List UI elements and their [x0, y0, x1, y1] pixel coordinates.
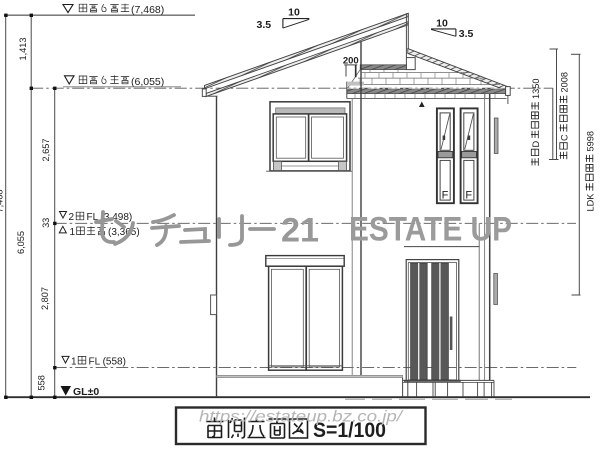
svg-text:2008: 2008	[560, 72, 570, 92]
svg-text:F: F	[465, 190, 472, 202]
svg-text:7,468: 7,468	[0, 190, 5, 213]
svg-text:ESTATE UP: ESTATE UP	[349, 211, 512, 249]
svg-text:F: F	[442, 190, 449, 202]
svg-text:1: 1	[70, 227, 76, 238]
svg-text:10: 10	[288, 7, 300, 19]
svg-text:33: 33	[41, 218, 51, 228]
svg-text:(7,468): (7,468)	[131, 4, 164, 16]
svg-text:C: C	[560, 134, 570, 141]
svg-text:1,413: 1,413	[18, 38, 28, 61]
svg-text:1350: 1350	[531, 79, 541, 99]
svg-text:2,657: 2,657	[41, 139, 51, 162]
svg-text:10: 10	[436, 17, 448, 29]
svg-text:D: D	[531, 141, 541, 148]
svg-text:3.5: 3.5	[459, 28, 474, 40]
svg-text:2: 2	[69, 212, 75, 223]
svg-text:FL (558): FL (558)	[89, 356, 126, 367]
svg-text:6,055: 6,055	[16, 231, 26, 254]
svg-text:21: 21	[281, 212, 319, 250]
svg-text:1: 1	[71, 356, 77, 367]
svg-text:LDK: LDK	[586, 193, 596, 212]
svg-text:558: 558	[37, 375, 47, 390]
svg-text:GL±0: GL±0	[73, 386, 99, 398]
svg-text:3.5: 3.5	[257, 19, 272, 31]
svg-text:2,807: 2,807	[40, 287, 50, 310]
svg-text:5998: 5998	[586, 131, 596, 151]
svg-text:https://estateup.bz.co.jp/: https://estateup.bz.co.jp/	[199, 409, 404, 426]
svg-text:(6,055): (6,055)	[131, 76, 164, 88]
